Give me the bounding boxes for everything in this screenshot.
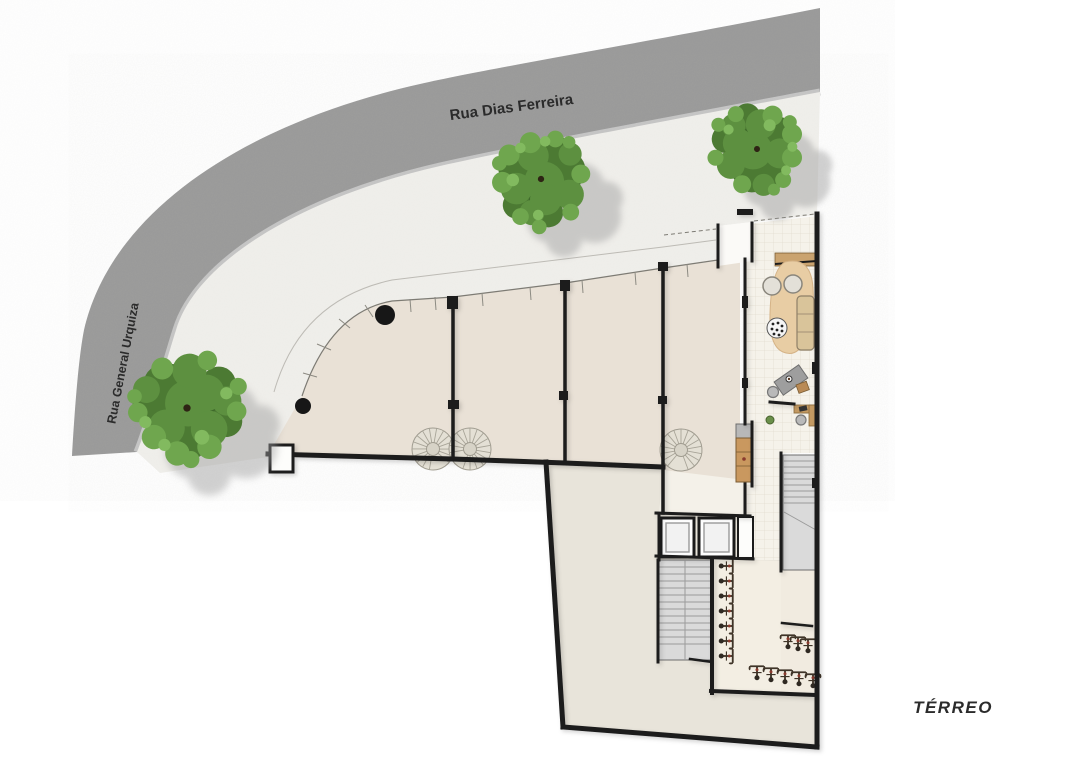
straight-stair bbox=[658, 560, 712, 660]
kitchenette bbox=[736, 424, 752, 482]
column-2 bbox=[295, 398, 311, 414]
floorplan-canvas: Rua Dias Ferreira Rua General Urquiza TÉ… bbox=[0, 0, 1080, 767]
floor-label-terreo: TÉRREO bbox=[913, 698, 993, 717]
shaft-room bbox=[738, 517, 753, 558]
round-side-table bbox=[767, 318, 787, 338]
armchair-1 bbox=[763, 277, 781, 295]
elevator-1 bbox=[661, 518, 694, 557]
elevator-2 bbox=[699, 518, 734, 557]
entrance-vestibule-floor bbox=[718, 222, 752, 266]
column-1 bbox=[375, 305, 395, 325]
shop3-floor bbox=[565, 268, 663, 467]
armchair-2 bbox=[784, 275, 802, 293]
plant-pot bbox=[766, 416, 774, 424]
sofa bbox=[797, 296, 814, 350]
floorplan-drawing: Rua Dias Ferreira Rua General Urquiza TÉ… bbox=[0, 0, 1080, 767]
side-stair bbox=[783, 455, 817, 570]
